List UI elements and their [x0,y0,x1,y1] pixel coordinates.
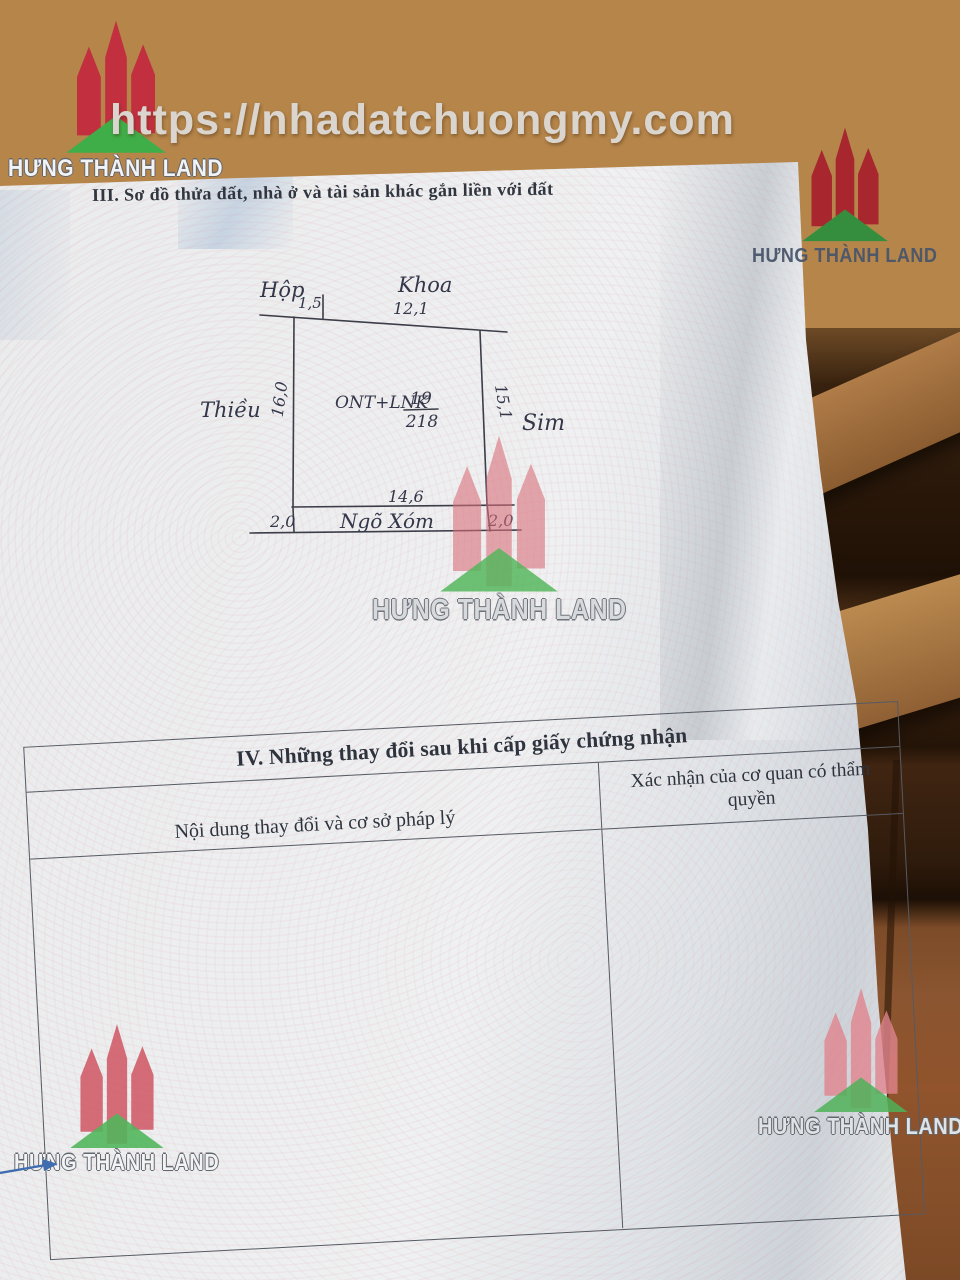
brand-watermark-center: HƯNG THÀNH LAND [372,428,627,625]
hung-thanh-land-logo-icon [56,1018,178,1150]
brand-name-text: HƯNG THÀNH LAND [8,155,223,183]
brand-watermark-top-right: HƯNG THÀNH LAND [752,122,937,266]
paper-edge-reflection [0,190,70,340]
road-width-left: 2,0 [269,512,295,531]
brand-watermark-bottom-left: HƯNG THÀNH LAND [14,1018,219,1175]
brand-name-text: HƯNG THÀNH LAND [372,594,627,627]
boundary-top-line [260,315,507,332]
hung-thanh-land-logo-icon [789,122,901,243]
dim-left: 16,0 [268,380,292,418]
dim-top: 12,1 [393,299,429,318]
brand-name-text: HƯNG THÀNH LAND [758,1114,960,1140]
boundary-left-line [293,317,294,507]
parcel-number: 19 [410,389,432,409]
hung-thanh-land-logo-icon [422,428,576,594]
neighbor-left-label: Thiều [200,398,261,422]
hung-thanh-land-logo-icon [800,982,922,1114]
photo-of-land-certificate: III. Sơ đồ thửa đất, nhà ở và tài sản kh… [0,0,960,1280]
dim-top-left: 1,5 [298,294,322,312]
neighbor-top-label: Khoa [397,273,452,297]
blue-pen-arrow-icon [0,1156,62,1184]
url-watermark: https://nhadatchuongmy.com [110,96,735,145]
brand-watermark-bottom-right: HƯNG THÀNH LAND [758,982,960,1139]
dim-right: 15,1 [491,383,516,421]
brand-name-text: HƯNG THÀNH LAND [752,243,937,267]
